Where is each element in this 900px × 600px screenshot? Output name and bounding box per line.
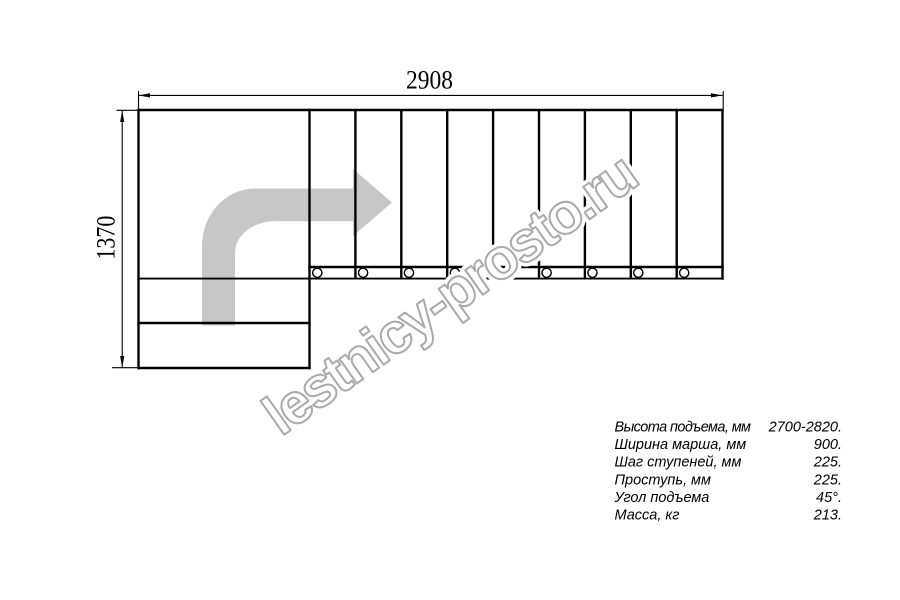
svg-text:213.: 213. <box>813 508 842 524</box>
svg-text:1370: 1370 <box>90 216 120 260</box>
svg-text:Масса, кг: Масса, кг <box>615 508 680 524</box>
svg-text:225.: 225. <box>813 472 842 488</box>
svg-text:Угол подъема: Угол подъема <box>614 490 710 506</box>
svg-text:Проступь, мм: Проступь, мм <box>615 472 711 488</box>
svg-text:2908: 2908 <box>406 64 453 94</box>
svg-text:Ширина марша, мм: Ширина марша, мм <box>615 437 747 453</box>
svg-text:225.: 225. <box>813 455 842 471</box>
svg-text:45°.: 45°. <box>816 490 842 506</box>
svg-text:2700-2820.: 2700-2820. <box>768 420 842 436</box>
svg-text:Высота подъема, мм: Высота подъема, мм <box>615 420 752 436</box>
svg-text:900.: 900. <box>814 437 842 453</box>
svg-text:Шаг ступеней, мм: Шаг ступеней, мм <box>615 455 742 471</box>
